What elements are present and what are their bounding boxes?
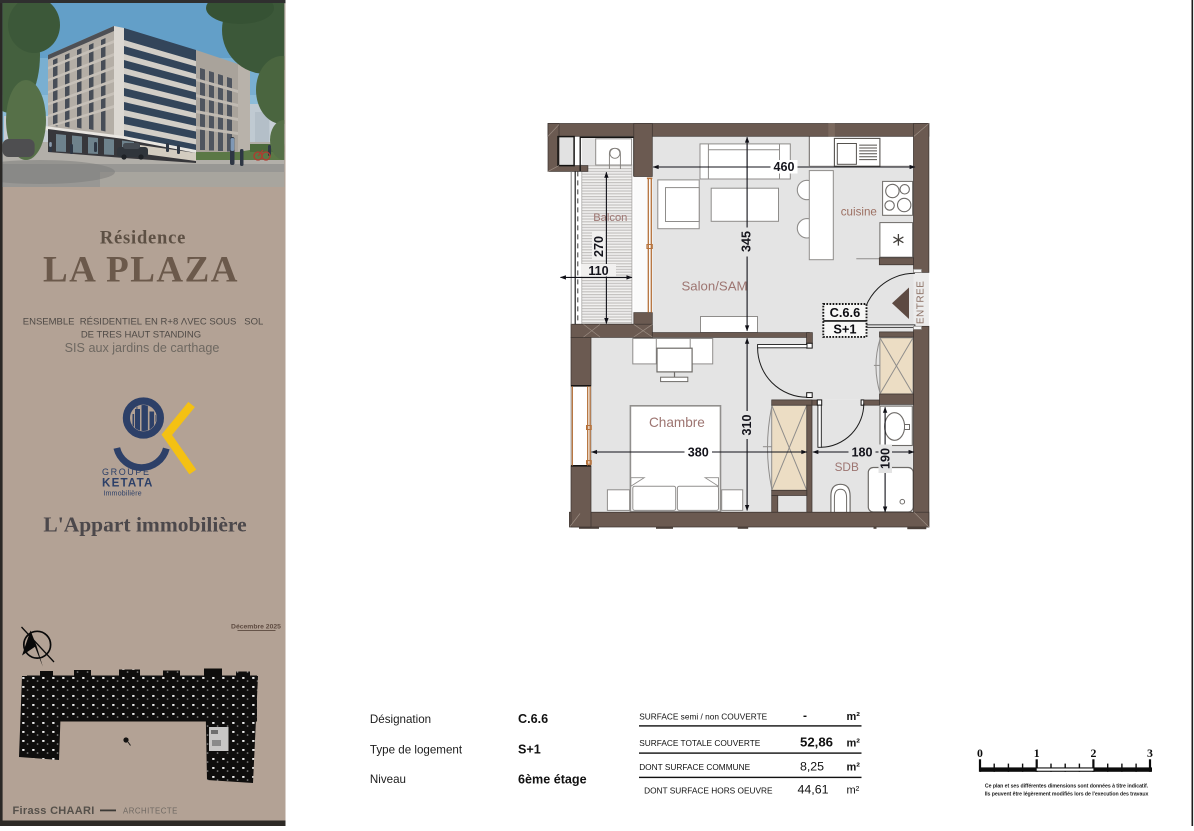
svg-text:SDB: SDB xyxy=(835,460,859,474)
svg-text:Chambre: Chambre xyxy=(649,415,705,430)
svg-text:8,25: 8,25 xyxy=(800,760,824,774)
svg-text:1: 1 xyxy=(1034,746,1040,760)
svg-text:110: 110 xyxy=(588,264,608,278)
svg-text:Niveau: Niveau xyxy=(370,773,406,786)
svg-text:L'Appart immobilière: L'Appart immobilière xyxy=(43,513,246,537)
svg-text:m²: m² xyxy=(847,711,861,723)
svg-text:Firass CHAARI: Firass CHAARI xyxy=(13,805,95,817)
svg-text:Ils peuvent être légèrement mo: Ils peuvent être légèrement modifiés lor… xyxy=(985,792,1149,798)
svg-text:ENTREE: ENTREE xyxy=(916,281,927,325)
svg-text:DONT SURFACE COMMUNE: DONT SURFACE COMMUNE xyxy=(639,762,750,772)
svg-text:cuisine: cuisine xyxy=(841,206,877,219)
svg-text:DONT SURFACE HORS OEUVRE: DONT SURFACE HORS OEUVRE xyxy=(644,785,773,795)
svg-text:DE TRES HAUT STANDING: DE TRES HAUT STANDING xyxy=(81,330,201,341)
svg-text:m²: m² xyxy=(847,737,861,749)
svg-text:Décembre 2025: Décembre 2025 xyxy=(231,624,281,631)
svg-text:310: 310 xyxy=(740,414,754,435)
svg-text:C.6.6: C.6.6 xyxy=(518,712,548,726)
svg-text:460: 460 xyxy=(773,160,794,174)
svg-text:345: 345 xyxy=(740,231,754,252)
svg-text:Salon/SAM: Salon/SAM xyxy=(682,279,748,294)
svg-text:m²: m² xyxy=(847,784,860,796)
svg-text:2: 2 xyxy=(1090,746,1096,760)
svg-text:52,86: 52,86 xyxy=(800,734,833,749)
svg-text:Ce plan et ses différentes dim: Ce plan et ses différentes dimensions so… xyxy=(985,784,1149,790)
svg-text:6ème étage: 6ème étage xyxy=(518,772,587,786)
svg-text:270: 270 xyxy=(592,236,606,257)
svg-text:LA PLAZA: LA PLAZA xyxy=(43,250,239,291)
svg-text:ARCHITECTE: ARCHITECTE xyxy=(123,807,178,816)
svg-text:190: 190 xyxy=(878,448,892,469)
svg-text:C.6.6: C.6.6 xyxy=(830,305,861,320)
svg-text:380: 380 xyxy=(688,445,709,459)
svg-text:m²: m² xyxy=(847,762,861,774)
svg-text:S+1: S+1 xyxy=(833,322,856,337)
svg-text:ENSEMBLE RÉSIDENTIEL EN R+8 Λ: ENSEMBLE RÉSIDENTIEL EN R+8 ΛVEC SOUS SO… xyxy=(23,317,264,328)
svg-text:3: 3 xyxy=(1147,746,1153,760)
svg-text:Type de logement: Type de logement xyxy=(370,743,463,756)
svg-text:SURFACE TOTALE COUVERTE: SURFACE TOTALE COUVERTE xyxy=(639,738,761,748)
svg-text:S+1: S+1 xyxy=(518,742,541,756)
svg-text:Résidence: Résidence xyxy=(100,229,186,249)
svg-text:Désignation: Désignation xyxy=(370,713,431,726)
svg-text:SIS aux jardins de carthage: SIS aux jardins de carthage xyxy=(65,341,220,355)
svg-text:180: 180 xyxy=(851,445,872,459)
svg-text:Immobilière: Immobilière xyxy=(104,491,142,498)
svg-text:-: - xyxy=(803,709,807,723)
svg-text:Balcon: Balcon xyxy=(593,212,627,224)
svg-text:44,61: 44,61 xyxy=(797,782,828,796)
svg-text:SURFACE semi / non COUVERTE: SURFACE semi / non COUVERTE xyxy=(639,712,767,722)
svg-text:0: 0 xyxy=(977,746,983,760)
svg-text:GROUPE: GROUPE xyxy=(102,467,151,477)
svg-text:KETATA: KETATA xyxy=(102,477,154,490)
